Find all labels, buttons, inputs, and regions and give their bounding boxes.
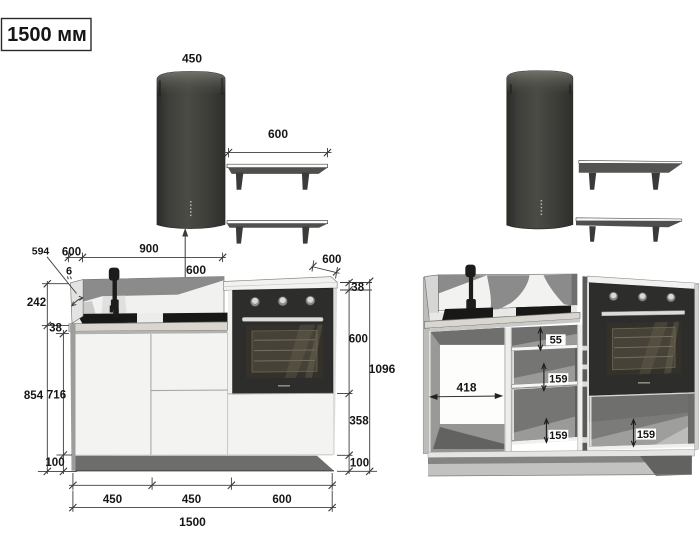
svg-text:159: 159 (549, 430, 567, 442)
svg-text:38: 38 (49, 322, 62, 334)
svg-text:358: 358 (349, 416, 369, 428)
svg-text:55: 55 (550, 334, 562, 346)
svg-text:38: 38 (351, 282, 364, 294)
svg-text:900: 900 (139, 244, 158, 256)
svg-text:1500 мм: 1500 мм (7, 24, 87, 46)
svg-text:600: 600 (268, 127, 288, 141)
svg-text:100: 100 (45, 457, 64, 469)
svg-text:1096: 1096 (369, 362, 396, 376)
svg-text:450: 450 (182, 52, 202, 66)
svg-text:716: 716 (47, 390, 66, 402)
svg-text:594: 594 (32, 246, 50, 258)
svg-text:100: 100 (350, 458, 369, 470)
svg-text:242: 242 (27, 297, 46, 309)
svg-text:450: 450 (182, 494, 201, 506)
svg-text:600: 600 (322, 254, 341, 266)
svg-text:450: 450 (103, 494, 122, 506)
svg-text:854: 854 (24, 390, 44, 402)
svg-text:159: 159 (549, 373, 567, 385)
svg-text:600: 600 (272, 494, 291, 506)
svg-text:418: 418 (456, 381, 476, 395)
svg-text:600: 600 (186, 263, 206, 277)
svg-text:600: 600 (62, 247, 81, 259)
svg-text:6: 6 (66, 266, 72, 278)
svg-text:159: 159 (637, 429, 655, 441)
svg-text:600: 600 (349, 334, 368, 346)
svg-text:1500: 1500 (179, 515, 206, 529)
